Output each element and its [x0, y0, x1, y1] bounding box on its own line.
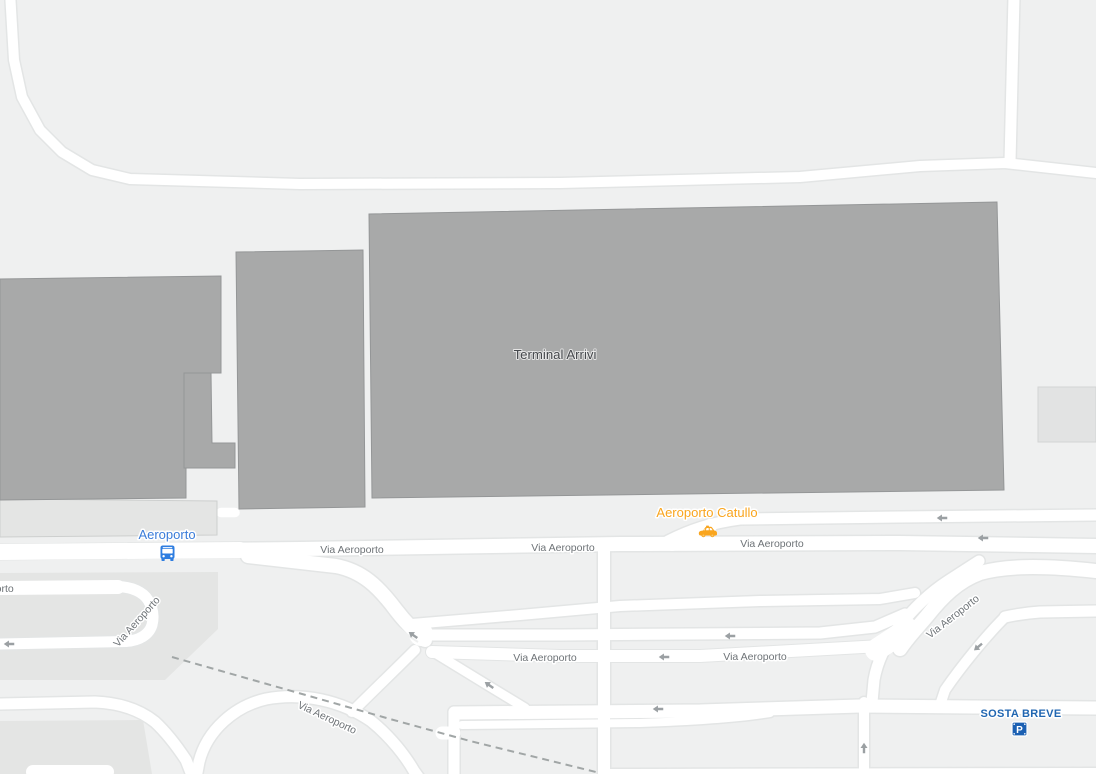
svg-text:P: P — [1016, 725, 1023, 736]
svg-text:Via Aeroporto: Via Aeroporto — [740, 538, 804, 550]
svg-text:Aeroporto: Aeroporto — [138, 527, 195, 542]
svg-text:SOSTA BREVE: SOSTA BREVE — [981, 708, 1062, 720]
svg-text:Via Aeroporto: Via Aeroporto — [513, 652, 577, 664]
svg-text:Terminal Arrivi: Terminal Arrivi — [514, 347, 597, 362]
svg-text:Via Aeroporto: Via Aeroporto — [531, 542, 595, 554]
svg-text:Via Aeroporto: Via Aeroporto — [0, 583, 14, 595]
svg-text:Via Aeroporto: Via Aeroporto — [320, 544, 384, 556]
svg-text:Aeroporto Catullo: Aeroporto Catullo — [656, 505, 757, 520]
svg-text:Via Aeroporto: Via Aeroporto — [723, 651, 787, 663]
